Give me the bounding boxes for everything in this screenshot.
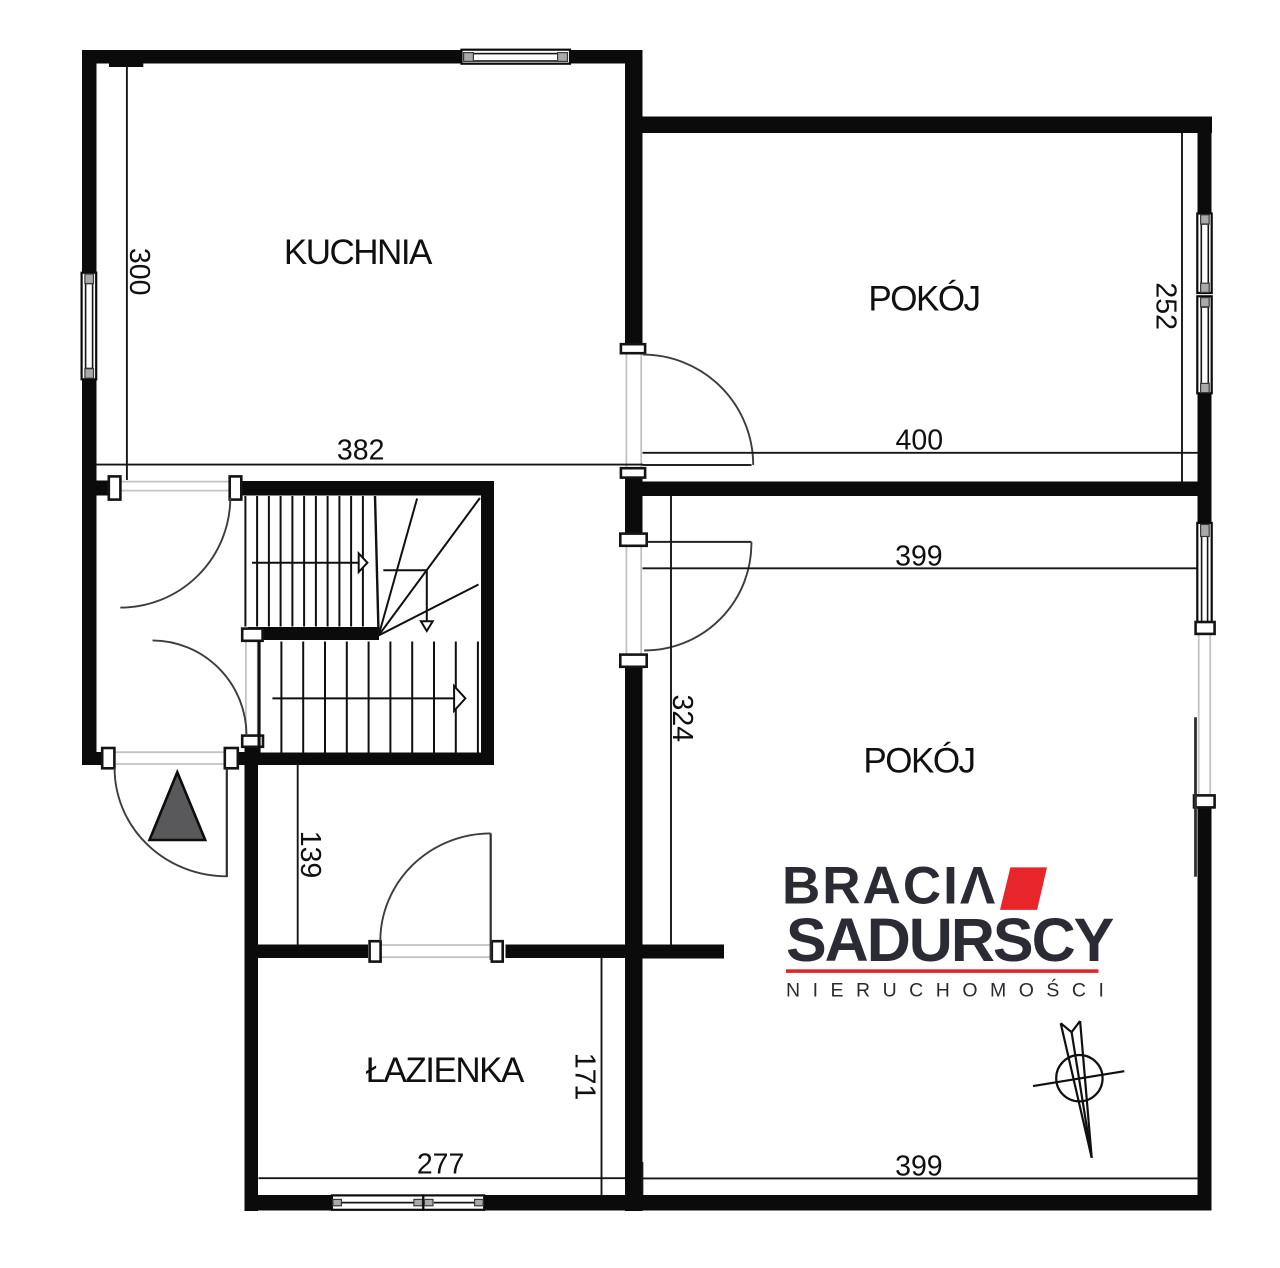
svg-text:399: 399 bbox=[895, 541, 943, 573]
svg-text:171: 171 bbox=[569, 1053, 601, 1101]
svg-text:SADURSCY: SADURSCY bbox=[786, 906, 1114, 974]
svg-text:KUCHNIA: KUCHNIA bbox=[284, 233, 433, 272]
svg-text:252: 252 bbox=[1150, 282, 1182, 330]
svg-text:NIERUCHOMOŚCI: NIERUCHOMOŚCI bbox=[786, 978, 1116, 1002]
svg-text:300: 300 bbox=[123, 248, 155, 296]
svg-text:POKÓJ: POKÓJ bbox=[868, 280, 979, 319]
svg-text:400: 400 bbox=[896, 424, 944, 456]
svg-text:324: 324 bbox=[666, 695, 698, 743]
svg-text:POKÓJ: POKÓJ bbox=[863, 742, 974, 781]
svg-text:399: 399 bbox=[895, 1151, 943, 1183]
svg-text:ŁAZIENKA: ŁAZIENKA bbox=[366, 1051, 525, 1090]
svg-text:382: 382 bbox=[337, 435, 385, 467]
svg-text:139: 139 bbox=[294, 831, 326, 879]
svg-text:277: 277 bbox=[417, 1149, 465, 1181]
